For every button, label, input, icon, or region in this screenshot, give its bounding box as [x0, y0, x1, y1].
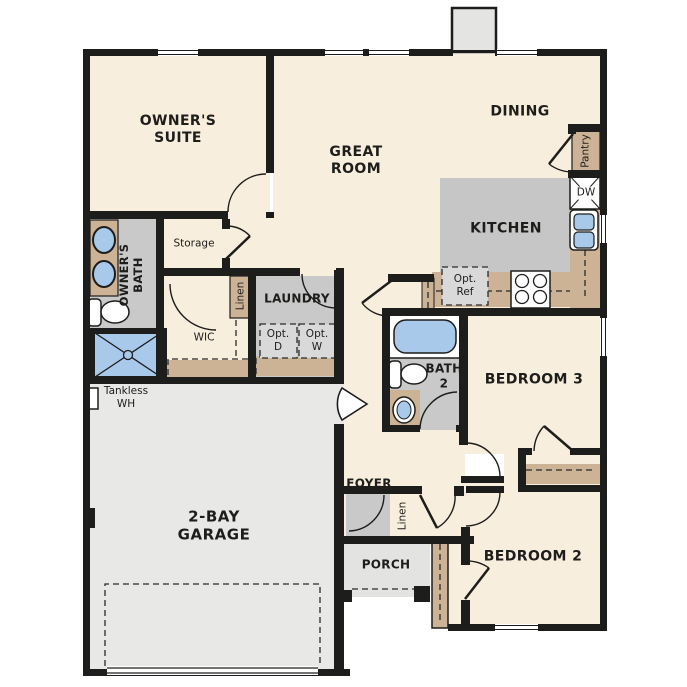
burner-4 [534, 291, 547, 304]
chimney [452, 8, 496, 52]
bathtub [394, 320, 456, 353]
laundry-counter [254, 356, 338, 376]
opt-w-box [299, 324, 336, 358]
window-bedroom3 [600, 318, 607, 356]
pantry-closet [572, 128, 600, 174]
kitchen-sink-bowl-2 [574, 232, 594, 248]
garage-door [107, 666, 318, 675]
floor-plan: OWNER'S SUITE GREAT ROOM DINING KITCHEN … [0, 0, 687, 687]
burner-3 [516, 291, 529, 304]
window-great-room-2 [369, 49, 409, 56]
kitchen-floor [440, 178, 572, 274]
garage-floor [88, 380, 344, 672]
window-owners-suite [158, 49, 198, 56]
opt-ref-box [442, 267, 488, 305]
owners-suite-floor [88, 54, 270, 216]
bedroom3-closet-shelf [522, 464, 600, 484]
bath2-toilet-bowl [401, 364, 427, 384]
burner-1 [516, 275, 529, 288]
bedroom3-floor [465, 314, 602, 454]
opt-d-box [260, 324, 297, 358]
window-kitchen [600, 215, 607, 243]
garage-wall-notch [83, 508, 95, 528]
window-dining [497, 49, 537, 56]
bath2-toilet-tank [389, 361, 401, 388]
vanity-sink-2 [93, 261, 115, 287]
bedroom2-floor [448, 483, 602, 628]
window-great-room-1 [325, 49, 363, 56]
owners-toilet-bowl [101, 301, 129, 323]
window-bedroom2 [495, 624, 538, 631]
bath2-sink [397, 401, 411, 419]
burner-2 [534, 275, 547, 288]
kitchen-sink-bowl-1 [574, 214, 594, 230]
floor-plan-drawing [0, 0, 687, 687]
wic-shelf [166, 360, 252, 377]
vanity-sink-1 [93, 227, 115, 253]
shower-drain [124, 351, 133, 360]
